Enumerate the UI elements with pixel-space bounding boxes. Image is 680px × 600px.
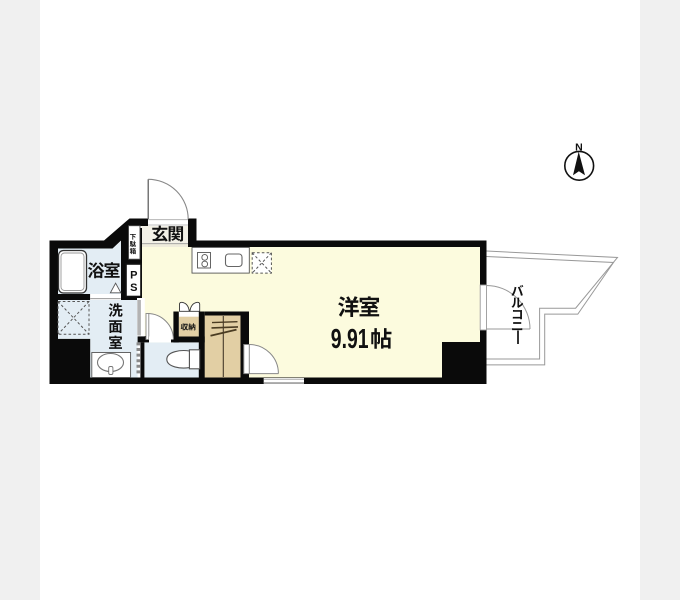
- svg-text:S: S: [130, 282, 137, 294]
- svg-text:N: N: [575, 141, 583, 153]
- svg-text:9.91: 9.91: [331, 324, 369, 355]
- svg-text:P: P: [130, 269, 137, 281]
